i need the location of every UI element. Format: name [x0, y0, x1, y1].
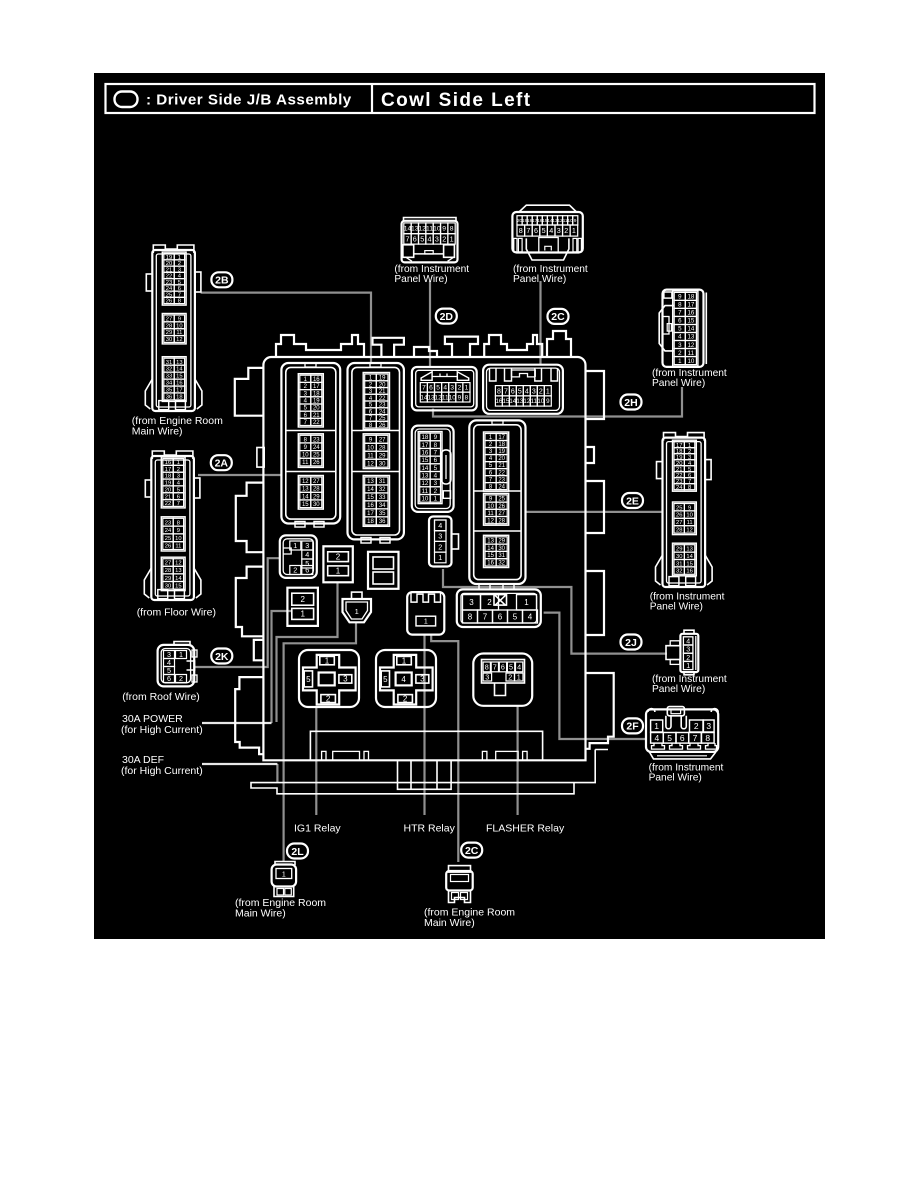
svg-text:1: 1 — [678, 358, 682, 365]
svg-text:34: 34 — [379, 503, 386, 509]
svg-text:4: 4 — [428, 235, 432, 244]
svg-text:2: 2 — [487, 598, 492, 607]
svg-text:30: 30 — [165, 583, 171, 589]
svg-text:25: 25 — [165, 536, 171, 542]
svg-text:26: 26 — [166, 299, 172, 305]
svg-text:1: 1 — [450, 235, 454, 244]
svg-text:3: 3 — [420, 675, 425, 684]
svg-text:4: 4 — [443, 385, 447, 392]
svg-text:3: 3 — [435, 235, 439, 244]
svg-text:35: 35 — [379, 511, 386, 517]
svg-text:1: 1 — [654, 721, 659, 731]
svg-text:2A: 2A — [215, 458, 229, 470]
svg-text:3: 3 — [438, 532, 442, 541]
svg-text:8: 8 — [485, 663, 489, 672]
svg-text:9: 9 — [177, 528, 180, 534]
svg-text:26: 26 — [379, 423, 386, 429]
svg-text:8: 8 — [468, 613, 473, 622]
svg-text:10: 10 — [175, 536, 181, 542]
svg-text:2J: 2J — [625, 637, 637, 649]
svg-text:1: 1 — [572, 226, 576, 235]
svg-text:2L: 2L — [291, 846, 304, 858]
svg-text:11: 11 — [422, 488, 429, 495]
svg-text:1: 1 — [517, 673, 521, 682]
svg-text:9: 9 — [574, 218, 577, 223]
svg-text:2: 2 — [179, 674, 183, 683]
svg-text:1: 1 — [179, 650, 183, 659]
svg-text:8: 8 — [519, 226, 523, 235]
svg-text:Main Wire): Main Wire) — [132, 426, 183, 438]
svg-text:14: 14 — [367, 487, 374, 493]
svg-text:4: 4 — [401, 675, 406, 684]
svg-text:9: 9 — [678, 294, 682, 301]
svg-text:7: 7 — [177, 501, 180, 507]
svg-text:2: 2 — [678, 350, 682, 357]
svg-text:3: 3 — [678, 342, 682, 349]
svg-text:16: 16 — [487, 561, 494, 567]
svg-text:11: 11 — [302, 460, 309, 466]
svg-text:3: 3 — [706, 721, 711, 731]
svg-text:2: 2 — [434, 488, 438, 495]
svg-text:2: 2 — [539, 388, 543, 395]
svg-text:5: 5 — [542, 226, 546, 235]
svg-text:1: 1 — [465, 385, 469, 392]
svg-text:15: 15 — [302, 502, 309, 508]
svg-text:7: 7 — [493, 663, 497, 672]
svg-text:1: 1 — [336, 566, 341, 575]
svg-text:2: 2 — [564, 226, 568, 235]
svg-text:17: 17 — [421, 442, 428, 449]
svg-text:Panel Wire): Panel Wire) — [649, 773, 702, 784]
svg-text:4: 4 — [678, 334, 682, 341]
svg-text:10: 10 — [433, 226, 441, 233]
svg-text:8: 8 — [450, 226, 454, 233]
svg-text:3: 3 — [532, 388, 536, 395]
svg-text:5: 5 — [420, 235, 424, 244]
svg-text:17: 17 — [687, 302, 694, 309]
svg-text:18: 18 — [176, 395, 182, 401]
svg-text:1: 1 — [438, 553, 442, 562]
svg-text:6: 6 — [534, 226, 538, 235]
svg-text:Panel Wire): Panel Wire) — [652, 378, 705, 389]
svg-text:32: 32 — [676, 569, 682, 575]
svg-text:2: 2 — [300, 595, 305, 604]
svg-text:(from Roof Wire): (from Roof Wire) — [122, 691, 200, 703]
svg-text:4: 4 — [528, 613, 533, 622]
svg-text:16: 16 — [687, 310, 694, 317]
svg-text:2K: 2K — [215, 651, 229, 663]
svg-text:Panel Wire): Panel Wire) — [513, 274, 566, 285]
svg-text:1: 1 — [293, 541, 297, 550]
svg-text:5: 5 — [518, 388, 522, 395]
svg-text:(from Floor Wire): (from Floor Wire) — [137, 607, 216, 619]
svg-text:12: 12 — [367, 461, 374, 467]
svg-text:2: 2 — [508, 673, 512, 682]
svg-text:15: 15 — [421, 457, 428, 464]
svg-text:11: 11 — [367, 453, 374, 459]
svg-text:6: 6 — [501, 663, 505, 672]
svg-text:5: 5 — [383, 675, 388, 684]
svg-text:Panel Wire): Panel Wire) — [652, 684, 705, 695]
svg-text:28: 28 — [165, 568, 171, 574]
svg-text:2: 2 — [403, 694, 408, 703]
svg-text:28: 28 — [676, 528, 682, 534]
svg-text:9: 9 — [546, 398, 550, 405]
svg-text:10: 10 — [687, 358, 694, 365]
svg-text:9: 9 — [442, 226, 446, 233]
svg-text:30: 30 — [313, 502, 320, 508]
svg-text:7: 7 — [678, 310, 682, 317]
svg-text:28: 28 — [498, 518, 505, 524]
svg-text:2B: 2B — [215, 275, 229, 287]
svg-text:1: 1 — [686, 663, 690, 670]
svg-text:8: 8 — [178, 299, 181, 305]
svg-text:4: 4 — [434, 473, 438, 480]
svg-text:Main Wire): Main Wire) — [424, 917, 475, 929]
svg-text:12: 12 — [176, 337, 182, 343]
svg-text:2H: 2H — [624, 397, 637, 409]
svg-text:32: 32 — [498, 561, 505, 567]
svg-text:14: 14 — [421, 465, 428, 472]
svg-text:33: 33 — [379, 495, 386, 501]
svg-text:7: 7 — [504, 388, 508, 395]
svg-text:1: 1 — [402, 656, 407, 665]
svg-text:1: 1 — [434, 496, 438, 503]
svg-text:3: 3 — [485, 673, 489, 682]
svg-text:8: 8 — [497, 388, 501, 395]
svg-text:8: 8 — [434, 442, 438, 449]
svg-text:27: 27 — [379, 437, 386, 443]
svg-text:2C: 2C — [551, 311, 565, 323]
svg-text:1: 1 — [282, 871, 286, 878]
svg-text:4: 4 — [549, 226, 553, 235]
svg-text:29: 29 — [165, 576, 171, 582]
svg-text:5: 5 — [509, 663, 513, 672]
svg-text:8: 8 — [705, 733, 710, 743]
svg-text:1: 1 — [424, 619, 428, 626]
svg-text:6: 6 — [429, 385, 433, 392]
svg-text:(for High Current): (for High Current) — [121, 724, 203, 736]
svg-text:FLASHER Relay: FLASHER Relay — [486, 823, 565, 835]
svg-text:5: 5 — [513, 613, 518, 622]
svg-text:8: 8 — [465, 394, 469, 401]
svg-text:6: 6 — [167, 674, 171, 683]
svg-text:13: 13 — [175, 568, 181, 574]
svg-text:18: 18 — [421, 434, 428, 441]
svg-text:Main Wire): Main Wire) — [235, 908, 286, 920]
svg-text:(for High Current): (for High Current) — [121, 765, 203, 777]
svg-text:36: 36 — [379, 519, 386, 525]
svg-text:16: 16 — [421, 450, 428, 457]
svg-text:36: 36 — [166, 395, 172, 401]
svg-text:12: 12 — [175, 561, 181, 567]
svg-text:27: 27 — [165, 561, 171, 567]
svg-text:3: 3 — [450, 385, 454, 392]
svg-text:18: 18 — [687, 294, 694, 301]
svg-text:15: 15 — [687, 318, 694, 325]
svg-text:2E: 2E — [626, 495, 639, 507]
svg-text:3: 3 — [557, 226, 561, 235]
svg-text:11: 11 — [175, 544, 181, 550]
svg-text:14: 14 — [687, 326, 694, 333]
svg-text:16: 16 — [367, 503, 374, 509]
svg-text:2: 2 — [336, 552, 341, 561]
svg-text:2: 2 — [458, 385, 462, 392]
svg-text:13: 13 — [367, 479, 374, 485]
svg-text:7: 7 — [693, 733, 698, 743]
svg-text:6: 6 — [434, 457, 438, 464]
svg-text:24: 24 — [676, 485, 683, 491]
svg-text:10: 10 — [421, 496, 428, 503]
svg-text:8: 8 — [688, 485, 691, 491]
svg-text:12: 12 — [421, 480, 428, 487]
svg-text:6: 6 — [305, 566, 309, 575]
svg-text:2D: 2D — [440, 311, 454, 323]
svg-text:22: 22 — [165, 501, 171, 507]
svg-text:9: 9 — [434, 434, 438, 441]
svg-text:17: 17 — [367, 511, 374, 517]
svg-text:2F: 2F — [626, 721, 639, 733]
svg-text:5: 5 — [436, 385, 440, 392]
svg-text:2: 2 — [442, 235, 446, 244]
svg-text:8: 8 — [177, 520, 180, 526]
svg-text:26: 26 — [313, 460, 320, 466]
svg-text:32: 32 — [379, 487, 386, 493]
svg-text:: Driver Side J/B Assembly: : Driver Side J/B Assembly — [146, 92, 352, 109]
svg-text:7: 7 — [434, 450, 438, 457]
svg-text:2: 2 — [326, 694, 331, 703]
svg-text:29: 29 — [379, 453, 386, 459]
svg-text:28: 28 — [379, 445, 386, 451]
svg-text:12: 12 — [687, 342, 694, 349]
svg-text:6: 6 — [511, 388, 515, 395]
svg-text:HTR Relay: HTR Relay — [404, 823, 456, 835]
svg-text:15: 15 — [175, 583, 181, 589]
svg-text:7: 7 — [422, 385, 426, 392]
svg-text:3: 3 — [305, 541, 309, 550]
svg-text:4: 4 — [438, 521, 442, 530]
svg-text:11: 11 — [688, 350, 695, 357]
svg-text:12: 12 — [686, 528, 692, 534]
svg-text:6: 6 — [678, 318, 682, 325]
svg-text:6: 6 — [413, 235, 417, 244]
svg-text:2C: 2C — [465, 845, 479, 857]
svg-text:Panel Wire): Panel Wire) — [394, 274, 447, 285]
svg-text:Cowl Side Left: Cowl Side Left — [381, 90, 532, 111]
svg-text:1: 1 — [355, 607, 359, 616]
svg-text:7: 7 — [406, 235, 410, 244]
svg-text:18: 18 — [367, 519, 374, 525]
svg-text:6: 6 — [498, 613, 503, 622]
svg-text:14: 14 — [175, 576, 182, 582]
svg-text:3: 3 — [434, 480, 438, 487]
svg-text:16: 16 — [686, 569, 692, 575]
svg-text:5: 5 — [678, 326, 682, 333]
svg-text:7: 7 — [526, 226, 530, 235]
svg-text:7: 7 — [483, 613, 488, 622]
svg-text:5: 5 — [667, 733, 672, 743]
svg-text:23: 23 — [165, 520, 171, 526]
svg-text:1: 1 — [524, 598, 529, 607]
svg-text:9: 9 — [458, 394, 462, 401]
svg-text:5: 5 — [434, 465, 438, 472]
svg-text:30: 30 — [379, 461, 386, 467]
svg-text:4: 4 — [517, 663, 521, 672]
svg-text:6: 6 — [680, 733, 685, 743]
svg-text:3: 3 — [469, 598, 474, 607]
svg-text:12: 12 — [487, 518, 494, 524]
svg-text:22: 22 — [313, 420, 320, 426]
svg-text:IG1 Relay: IG1 Relay — [294, 823, 341, 835]
svg-text:2: 2 — [694, 721, 699, 731]
svg-text:10: 10 — [449, 394, 457, 401]
svg-text:10: 10 — [537, 398, 544, 405]
svg-text:24: 24 — [165, 528, 172, 534]
svg-text:24: 24 — [498, 484, 505, 490]
svg-text:3: 3 — [343, 675, 348, 684]
svg-text:13: 13 — [687, 334, 694, 341]
svg-text:30: 30 — [166, 337, 172, 343]
svg-text:24: 24 — [313, 445, 320, 451]
svg-text:5: 5 — [306, 675, 311, 684]
svg-text:1: 1 — [325, 656, 330, 665]
svg-text:8: 8 — [678, 302, 682, 309]
svg-text:31: 31 — [379, 479, 386, 485]
svg-text:2: 2 — [293, 566, 297, 575]
svg-text:1: 1 — [300, 610, 305, 619]
svg-text:4: 4 — [655, 733, 660, 743]
svg-text:4: 4 — [305, 550, 309, 559]
svg-text:Panel Wire): Panel Wire) — [650, 602, 703, 613]
svg-text:1: 1 — [546, 388, 550, 395]
svg-text:26: 26 — [165, 544, 171, 550]
svg-text:4: 4 — [525, 388, 529, 395]
svg-text:13: 13 — [421, 473, 428, 480]
svg-text:10: 10 — [367, 445, 374, 451]
svg-text:15: 15 — [367, 495, 374, 501]
svg-text:2: 2 — [438, 542, 442, 551]
